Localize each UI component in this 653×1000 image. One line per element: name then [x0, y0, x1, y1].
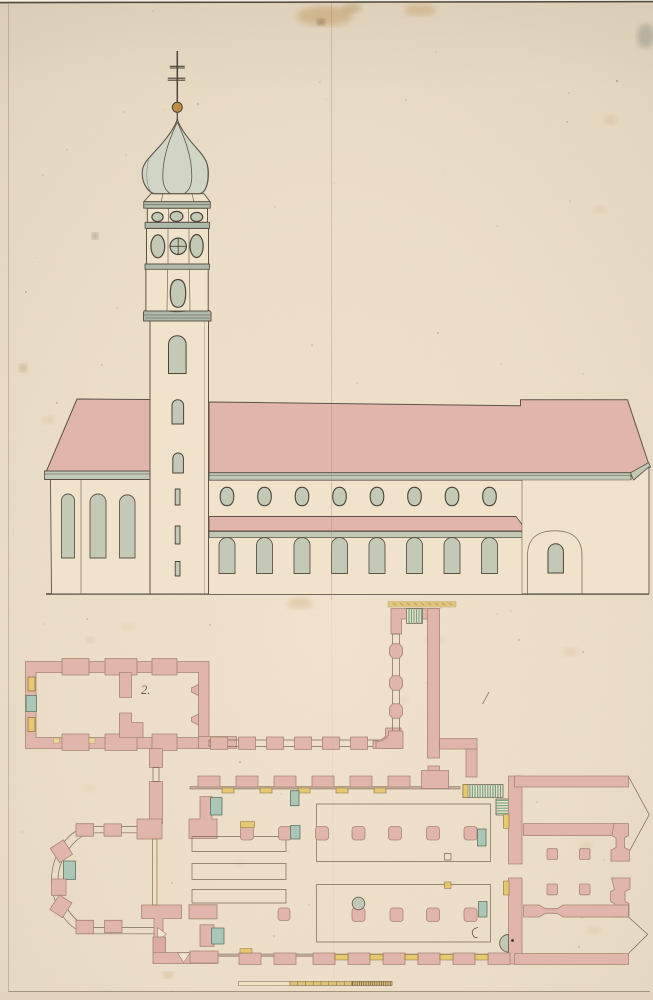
svg-text:2.: 2. [141, 683, 150, 697]
